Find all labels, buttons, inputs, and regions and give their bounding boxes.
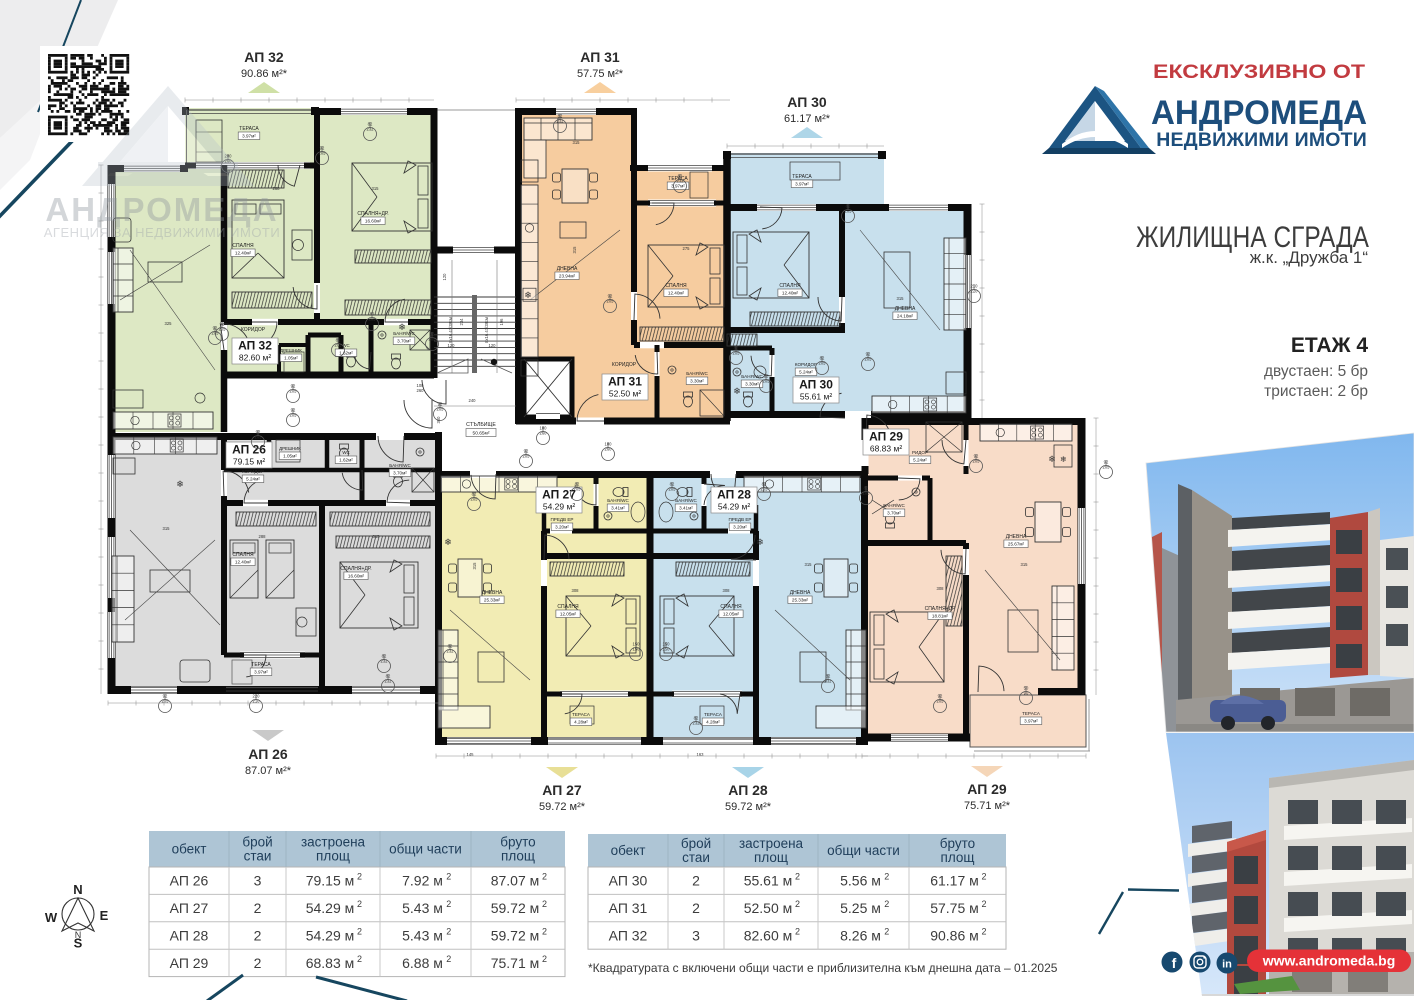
svg-text:ДНЕВНА: ДНЕВНА xyxy=(1006,534,1027,540)
svg-text:25.67м²: 25.67м² xyxy=(1008,542,1025,547)
svg-text:ТЕРАСА: ТЕРАСА xyxy=(251,662,271,668)
svg-text:общи части: общи части xyxy=(827,843,900,858)
svg-text:3: 3 xyxy=(692,928,700,944)
svg-text:315: 315 xyxy=(163,526,171,531)
svg-text:23.94м²: 23.94м² xyxy=(559,274,576,279)
svg-text:196: 196 xyxy=(499,318,504,326)
svg-text:ЕКСКЛУЗИВНО ОТ: ЕКСКЛУЗИВНО ОТ xyxy=(1153,61,1365,83)
svg-text:2: 2 xyxy=(357,927,362,937)
svg-text:59.72 м²*: 59.72 м²* xyxy=(539,801,586,813)
svg-text:2: 2 xyxy=(254,928,262,944)
svg-text:3.97м²: 3.97м² xyxy=(242,134,256,139)
svg-text:2: 2 xyxy=(446,927,451,937)
svg-text:5.24м²: 5.24м² xyxy=(246,477,260,482)
svg-text:АП 26: АП 26 xyxy=(170,873,209,889)
svg-text:❄: ❄ xyxy=(1060,455,1067,464)
svg-text:АГЕНЦИЯ ЗА НЕДВИЖИМИ ИМОТИ: АГЕНЦИЯ ЗА НЕДВИЖИМИ ИМОТИ xyxy=(44,225,280,240)
svg-text:12.40м²: 12.40м² xyxy=(782,291,799,296)
svg-text:57.75 м²*: 57.75 м²* xyxy=(577,68,624,80)
svg-text:234: 234 xyxy=(459,318,464,326)
svg-text:54.29 м²: 54.29 м² xyxy=(718,502,750,512)
svg-text:W: W xyxy=(45,910,58,925)
svg-text:БАНЯ/WC: БАНЯ/WC xyxy=(741,374,763,379)
svg-text:обект: обект xyxy=(611,843,646,858)
svg-text:55.61 м: 55.61 м xyxy=(744,873,793,889)
svg-text:8.26 м: 8.26 м xyxy=(840,928,881,944)
svg-text:6.88 м: 6.88 м xyxy=(402,955,443,971)
svg-text:БАНЯ/WC: БАНЯ/WC xyxy=(607,498,629,503)
svg-text:3.70м²: 3.70м² xyxy=(397,339,411,344)
svg-text:СПАЛНЯ+ДР.: СПАЛНЯ+ДР. xyxy=(357,211,388,217)
svg-text:79.15 м: 79.15 м xyxy=(306,873,355,889)
svg-text:5.56 м: 5.56 м xyxy=(840,873,881,889)
svg-text:288: 288 xyxy=(259,534,267,539)
svg-text:ж.к. „Дружба 1“: ж.к. „Дружба 1“ xyxy=(1250,248,1369,267)
svg-text:315: 315 xyxy=(1021,562,1029,567)
svg-text:59.72 м: 59.72 м xyxy=(491,900,540,916)
svg-text:75.71 м: 75.71 м xyxy=(491,955,540,971)
svg-text:1.62м²: 1.62м² xyxy=(339,351,353,356)
svg-text:3: 3 xyxy=(254,873,262,889)
svg-text:СПАЛНЯ: СПАЛНЯ xyxy=(232,243,254,249)
svg-text:90.86 м²*: 90.86 м²* xyxy=(241,68,288,80)
svg-text:СПАЛНЯ+ДР: СПАЛНЯ+ДР xyxy=(925,606,956,612)
svg-text:3.20м²: 3.20м² xyxy=(555,525,569,530)
svg-text:обект: обект xyxy=(172,842,207,857)
svg-text:АП 32: АП 32 xyxy=(244,49,284,65)
svg-text:2: 2 xyxy=(357,954,362,964)
svg-text:БАНЯ/WC: БАНЯ/WC xyxy=(389,463,411,468)
svg-text:12.40м²: 12.40м² xyxy=(235,251,252,256)
svg-text:РИДОР: РИДОР xyxy=(912,450,928,455)
svg-text:❄: ❄ xyxy=(1048,454,1056,464)
svg-text:WC: WC xyxy=(342,450,349,455)
svg-text:24.18м²: 24.18м² xyxy=(897,314,914,319)
svg-text:КОРИДОР: КОРИДОР xyxy=(242,469,264,474)
svg-text:АП 26: АП 26 xyxy=(248,746,288,762)
svg-text:16.60м²: 16.60м² xyxy=(348,574,365,579)
svg-text:БАНЯ/WC: БАНЯ/WC xyxy=(883,503,905,508)
svg-text:1.62м²: 1.62м² xyxy=(339,458,353,463)
svg-text:3.41м²: 3.41м² xyxy=(679,506,693,511)
svg-text:52.50 м: 52.50 м xyxy=(744,900,793,916)
svg-text:2: 2 xyxy=(692,873,700,889)
svg-text:СПАЛНЯ: СПАЛНЯ xyxy=(665,283,687,289)
svg-text:АП 30: АП 30 xyxy=(787,94,827,110)
svg-text:СПАЛНЯ+ДР.: СПАЛНЯ+ДР. xyxy=(340,566,371,572)
svg-text:ДНЕВНА: ДНЕВНА xyxy=(895,306,916,312)
svg-text:82.60 м²: 82.60 м² xyxy=(239,353,271,363)
svg-text:АП 26: АП 26 xyxy=(232,443,266,457)
svg-text:2: 2 xyxy=(542,899,547,909)
svg-text:12.40м²: 12.40м² xyxy=(235,560,252,565)
svg-text:120: 120 xyxy=(448,343,456,348)
svg-text:5.43 м: 5.43 м xyxy=(402,900,443,916)
svg-text:54.29 м²: 54.29 м² xyxy=(543,502,575,512)
svg-text:АП 30: АП 30 xyxy=(609,873,648,889)
svg-text:315: 315 xyxy=(572,246,577,254)
svg-text:75.71 м²*: 75.71 м²* xyxy=(964,800,1011,812)
svg-text:БАНЯ/WC: БАНЯ/WC xyxy=(686,371,708,376)
svg-text:❄: ❄ xyxy=(444,537,452,547)
svg-text:АП 28: АП 28 xyxy=(170,928,209,944)
svg-text:2: 2 xyxy=(446,872,451,882)
svg-text:АП 32: АП 32 xyxy=(609,928,648,944)
svg-text:АП 29: АП 29 xyxy=(967,781,1007,797)
svg-text:315: 315 xyxy=(472,562,477,570)
svg-text:in: in xyxy=(1222,959,1232,971)
svg-text:❄: ❄ xyxy=(176,479,184,489)
svg-text:2: 2 xyxy=(982,927,987,937)
svg-text:308: 308 xyxy=(572,588,580,593)
svg-text:2: 2 xyxy=(884,899,889,909)
svg-text:АП 27: АП 27 xyxy=(542,488,576,502)
svg-text:54.29 м: 54.29 м xyxy=(306,928,355,944)
svg-text:2: 2 xyxy=(542,927,547,937)
svg-text:3.70м²: 3.70м² xyxy=(887,511,901,516)
svg-text:2: 2 xyxy=(982,899,987,909)
svg-text:2: 2 xyxy=(795,872,800,882)
svg-text:16.60м²: 16.60м² xyxy=(365,219,382,224)
svg-text:315: 315 xyxy=(573,140,581,145)
svg-text:8x16.47/28см: 8x16.47/28см xyxy=(484,317,489,343)
svg-text:5.24м²: 5.24м² xyxy=(913,458,927,463)
svg-text:S: S xyxy=(74,936,83,951)
svg-text:АП 28: АП 28 xyxy=(717,488,751,502)
svg-text:АП 31: АП 31 xyxy=(609,900,648,916)
svg-text:240: 240 xyxy=(469,398,477,403)
svg-text:2: 2 xyxy=(795,899,800,909)
svg-text:СТЪЛБИЩЕ: СТЪЛБИЩЕ xyxy=(466,422,496,428)
svg-text:79.15 м²: 79.15 м² xyxy=(233,457,265,467)
svg-text:308: 308 xyxy=(723,588,731,593)
svg-text:68.83 м: 68.83 м xyxy=(306,955,355,971)
svg-text:ПРЕДВ ЕР: ПРЕДВ ЕР xyxy=(550,517,573,522)
svg-text:308: 308 xyxy=(937,586,945,591)
svg-text:КОРИДОР: КОРИДОР xyxy=(241,327,266,333)
svg-text:55.61 м²: 55.61 м² xyxy=(800,392,832,402)
svg-text:БАНЯ/WC: БАНЯ/WC xyxy=(675,498,697,503)
svg-text:2: 2 xyxy=(357,899,362,909)
svg-text:N: N xyxy=(73,882,82,897)
svg-text:ТЕРАСА: ТЕРАСА xyxy=(239,126,259,132)
svg-text:СПАЛНЯ: СПАЛНЯ xyxy=(557,604,579,610)
svg-text:2: 2 xyxy=(884,927,889,937)
svg-text:застроена: застроена xyxy=(739,836,804,851)
svg-text:18.81м²: 18.81м² xyxy=(932,614,949,619)
svg-text:двустаен: 5 бр: двустаен: 5 бр xyxy=(1264,363,1368,380)
svg-text:2: 2 xyxy=(692,900,700,916)
svg-text:*Квадратурата с включени общи: *Квадратурата с включени общи части е пр… xyxy=(588,961,1058,975)
svg-text:WC: WC xyxy=(342,343,349,348)
svg-text:АП 31: АП 31 xyxy=(608,375,642,389)
svg-text:ДНЕВНА: ДНЕВНА xyxy=(482,590,503,596)
svg-text:АНДРОМЕДА: АНДРОМЕДА xyxy=(45,191,278,228)
svg-text:87.07 м²*: 87.07 м²* xyxy=(245,765,292,777)
svg-text:НЕДВИЖИМИ ИМОТИ: НЕДВИЖИМИ ИМОТИ xyxy=(1156,129,1367,151)
svg-text:3.97м²: 3.97м² xyxy=(254,670,268,675)
svg-text:2: 2 xyxy=(254,900,262,916)
svg-text:52.50 м²: 52.50 м² xyxy=(609,389,641,399)
svg-text:59.72 м²*: 59.72 м²* xyxy=(725,801,772,813)
svg-text:АНДРОМЕДА: АНДРОМЕДА xyxy=(1151,94,1367,132)
svg-text:59.72 м: 59.72 м xyxy=(491,928,540,944)
svg-text:61.17 м²*: 61.17 м²* xyxy=(784,113,831,125)
svg-text:275: 275 xyxy=(683,246,691,251)
svg-text:2: 2 xyxy=(446,954,451,964)
svg-text:бруто: бруто xyxy=(500,835,535,850)
svg-text:ТЕРАСА: ТЕРАСА xyxy=(572,712,591,717)
svg-text:СПАЛНЯ: СПАЛНЯ xyxy=(779,283,801,289)
svg-text:5.25 м: 5.25 м xyxy=(840,900,881,916)
svg-text:3.70м²: 3.70м² xyxy=(393,471,407,476)
svg-text:54.29 м: 54.29 м xyxy=(306,900,355,916)
svg-text:87.07 м: 87.07 м xyxy=(491,873,540,889)
svg-text:5.43 м: 5.43 м xyxy=(402,928,443,944)
svg-text:2: 2 xyxy=(982,872,987,882)
svg-text:❄: ❄ xyxy=(398,322,406,332)
svg-text:50.65м²: 50.65м² xyxy=(473,431,490,437)
svg-text:площ: площ xyxy=(316,849,350,864)
svg-text:АП 30: АП 30 xyxy=(799,378,833,392)
svg-text:www.andromeda.bg: www.andromeda.bg xyxy=(1262,953,1396,969)
svg-text:ЕТАЖ 4: ЕТАЖ 4 xyxy=(1291,334,1368,357)
svg-text:315: 315 xyxy=(373,534,381,539)
svg-text:АП 27: АП 27 xyxy=(542,782,582,798)
svg-text:тристаен: 2 бр: тристаен: 2 бр xyxy=(1264,383,1368,400)
svg-text:ДНЕВНА: ДНЕВНА xyxy=(790,590,811,596)
svg-text:25.33м²: 25.33м² xyxy=(484,598,501,603)
svg-text:120: 120 xyxy=(442,273,447,281)
svg-text:КОРИДОР: КОРИДОР xyxy=(795,362,817,367)
svg-text:315: 315 xyxy=(805,562,813,567)
svg-text:ТЕРАСА: ТЕРАСА xyxy=(1022,711,1041,716)
svg-text:СПАЛНЯ: СПАЛНЯ xyxy=(232,552,254,558)
svg-text:2: 2 xyxy=(254,955,262,971)
svg-text:❄: ❄ xyxy=(524,290,532,300)
svg-text:12.05м²: 12.05м² xyxy=(723,612,740,617)
svg-text:ТЕРАСА: ТЕРАСА xyxy=(792,174,812,180)
svg-text:2: 2 xyxy=(795,927,800,937)
svg-text:ДРЕШНИК: ДРЕШНИК xyxy=(280,348,302,353)
svg-text:7.92 м: 7.92 м xyxy=(402,873,443,889)
svg-text:АП 29: АП 29 xyxy=(869,430,903,444)
svg-text:9x16.47/28см: 9x16.47/28см xyxy=(448,317,453,343)
svg-text:брой: брой xyxy=(242,835,272,850)
svg-text:315: 315 xyxy=(897,296,905,301)
svg-text:площ: площ xyxy=(754,850,788,865)
svg-text:E: E xyxy=(100,908,109,923)
svg-text:12.05м²: 12.05м² xyxy=(560,612,577,617)
svg-text:ТЕРАСА: ТЕРАСА xyxy=(704,712,723,717)
svg-text:4.28м²: 4.28м² xyxy=(574,720,588,725)
svg-text:стаи: стаи xyxy=(682,850,710,865)
svg-text:5.24м²: 5.24м² xyxy=(799,370,813,375)
svg-text:площ: площ xyxy=(501,849,535,864)
svg-text:25.33м²: 25.33м² xyxy=(792,598,809,603)
svg-text:ДНЕВНА: ДНЕВНА xyxy=(557,266,578,272)
svg-text:f: f xyxy=(1172,955,1177,971)
svg-text:1.05м²: 1.05м² xyxy=(284,356,298,361)
svg-text:90.86 м: 90.86 м xyxy=(930,928,979,944)
svg-text:площ: площ xyxy=(941,850,975,865)
svg-text:КОРИДОР: КОРИДОР xyxy=(612,362,637,368)
svg-text:2: 2 xyxy=(542,954,547,964)
svg-text:АП 32: АП 32 xyxy=(238,339,272,353)
svg-text:АП 27: АП 27 xyxy=(170,900,209,916)
svg-text:315: 315 xyxy=(372,186,380,191)
svg-text:82.60 м: 82.60 м xyxy=(744,928,793,944)
svg-text:2: 2 xyxy=(446,899,451,909)
svg-text:68.83 м²: 68.83 м² xyxy=(870,444,902,454)
svg-text:стаи: стаи xyxy=(244,849,272,864)
svg-text:АП 28: АП 28 xyxy=(728,782,768,798)
svg-text:❄: ❄ xyxy=(733,386,741,396)
svg-text:57.75 м: 57.75 м xyxy=(930,900,979,916)
svg-text:общи части: общи части xyxy=(389,842,462,857)
svg-text:бруто: бруто xyxy=(940,836,975,851)
svg-text:61.17 м: 61.17 м xyxy=(930,873,979,889)
svg-text:застроена: застроена xyxy=(301,835,366,850)
svg-text:3.30м²: 3.30м² xyxy=(745,382,759,387)
svg-text:ДРЕШНИК: ДРЕШНИК xyxy=(279,446,301,451)
svg-text:АП 29: АП 29 xyxy=(170,955,209,971)
svg-text:1.05м²: 1.05м² xyxy=(283,454,297,459)
svg-text:3.41м²: 3.41м² xyxy=(611,506,625,511)
svg-text:120: 120 xyxy=(489,343,497,348)
svg-text:3.20м²: 3.20м² xyxy=(733,525,747,530)
svg-text:2: 2 xyxy=(884,872,889,882)
svg-text:брой: брой xyxy=(681,836,711,851)
svg-text:2: 2 xyxy=(357,872,362,882)
svg-text:325: 325 xyxy=(165,321,173,326)
svg-text:ПРЕДВ ЕР: ПРЕДВ ЕР xyxy=(728,517,751,522)
svg-text:2: 2 xyxy=(542,872,547,882)
svg-text:12.40м²: 12.40м² xyxy=(668,291,685,296)
svg-text:3.30м²: 3.30м² xyxy=(690,379,704,384)
svg-text:3.97м²: 3.97м² xyxy=(1024,719,1038,724)
svg-text:3.97м²: 3.97м² xyxy=(795,182,809,187)
svg-text:АП 31: АП 31 xyxy=(580,49,620,65)
svg-text:❄: ❄ xyxy=(756,537,764,547)
svg-text:260: 260 xyxy=(417,388,425,393)
svg-text:СПАЛНЯ: СПАЛНЯ xyxy=(720,604,742,610)
svg-text:4.28м²: 4.28м² xyxy=(706,720,720,725)
